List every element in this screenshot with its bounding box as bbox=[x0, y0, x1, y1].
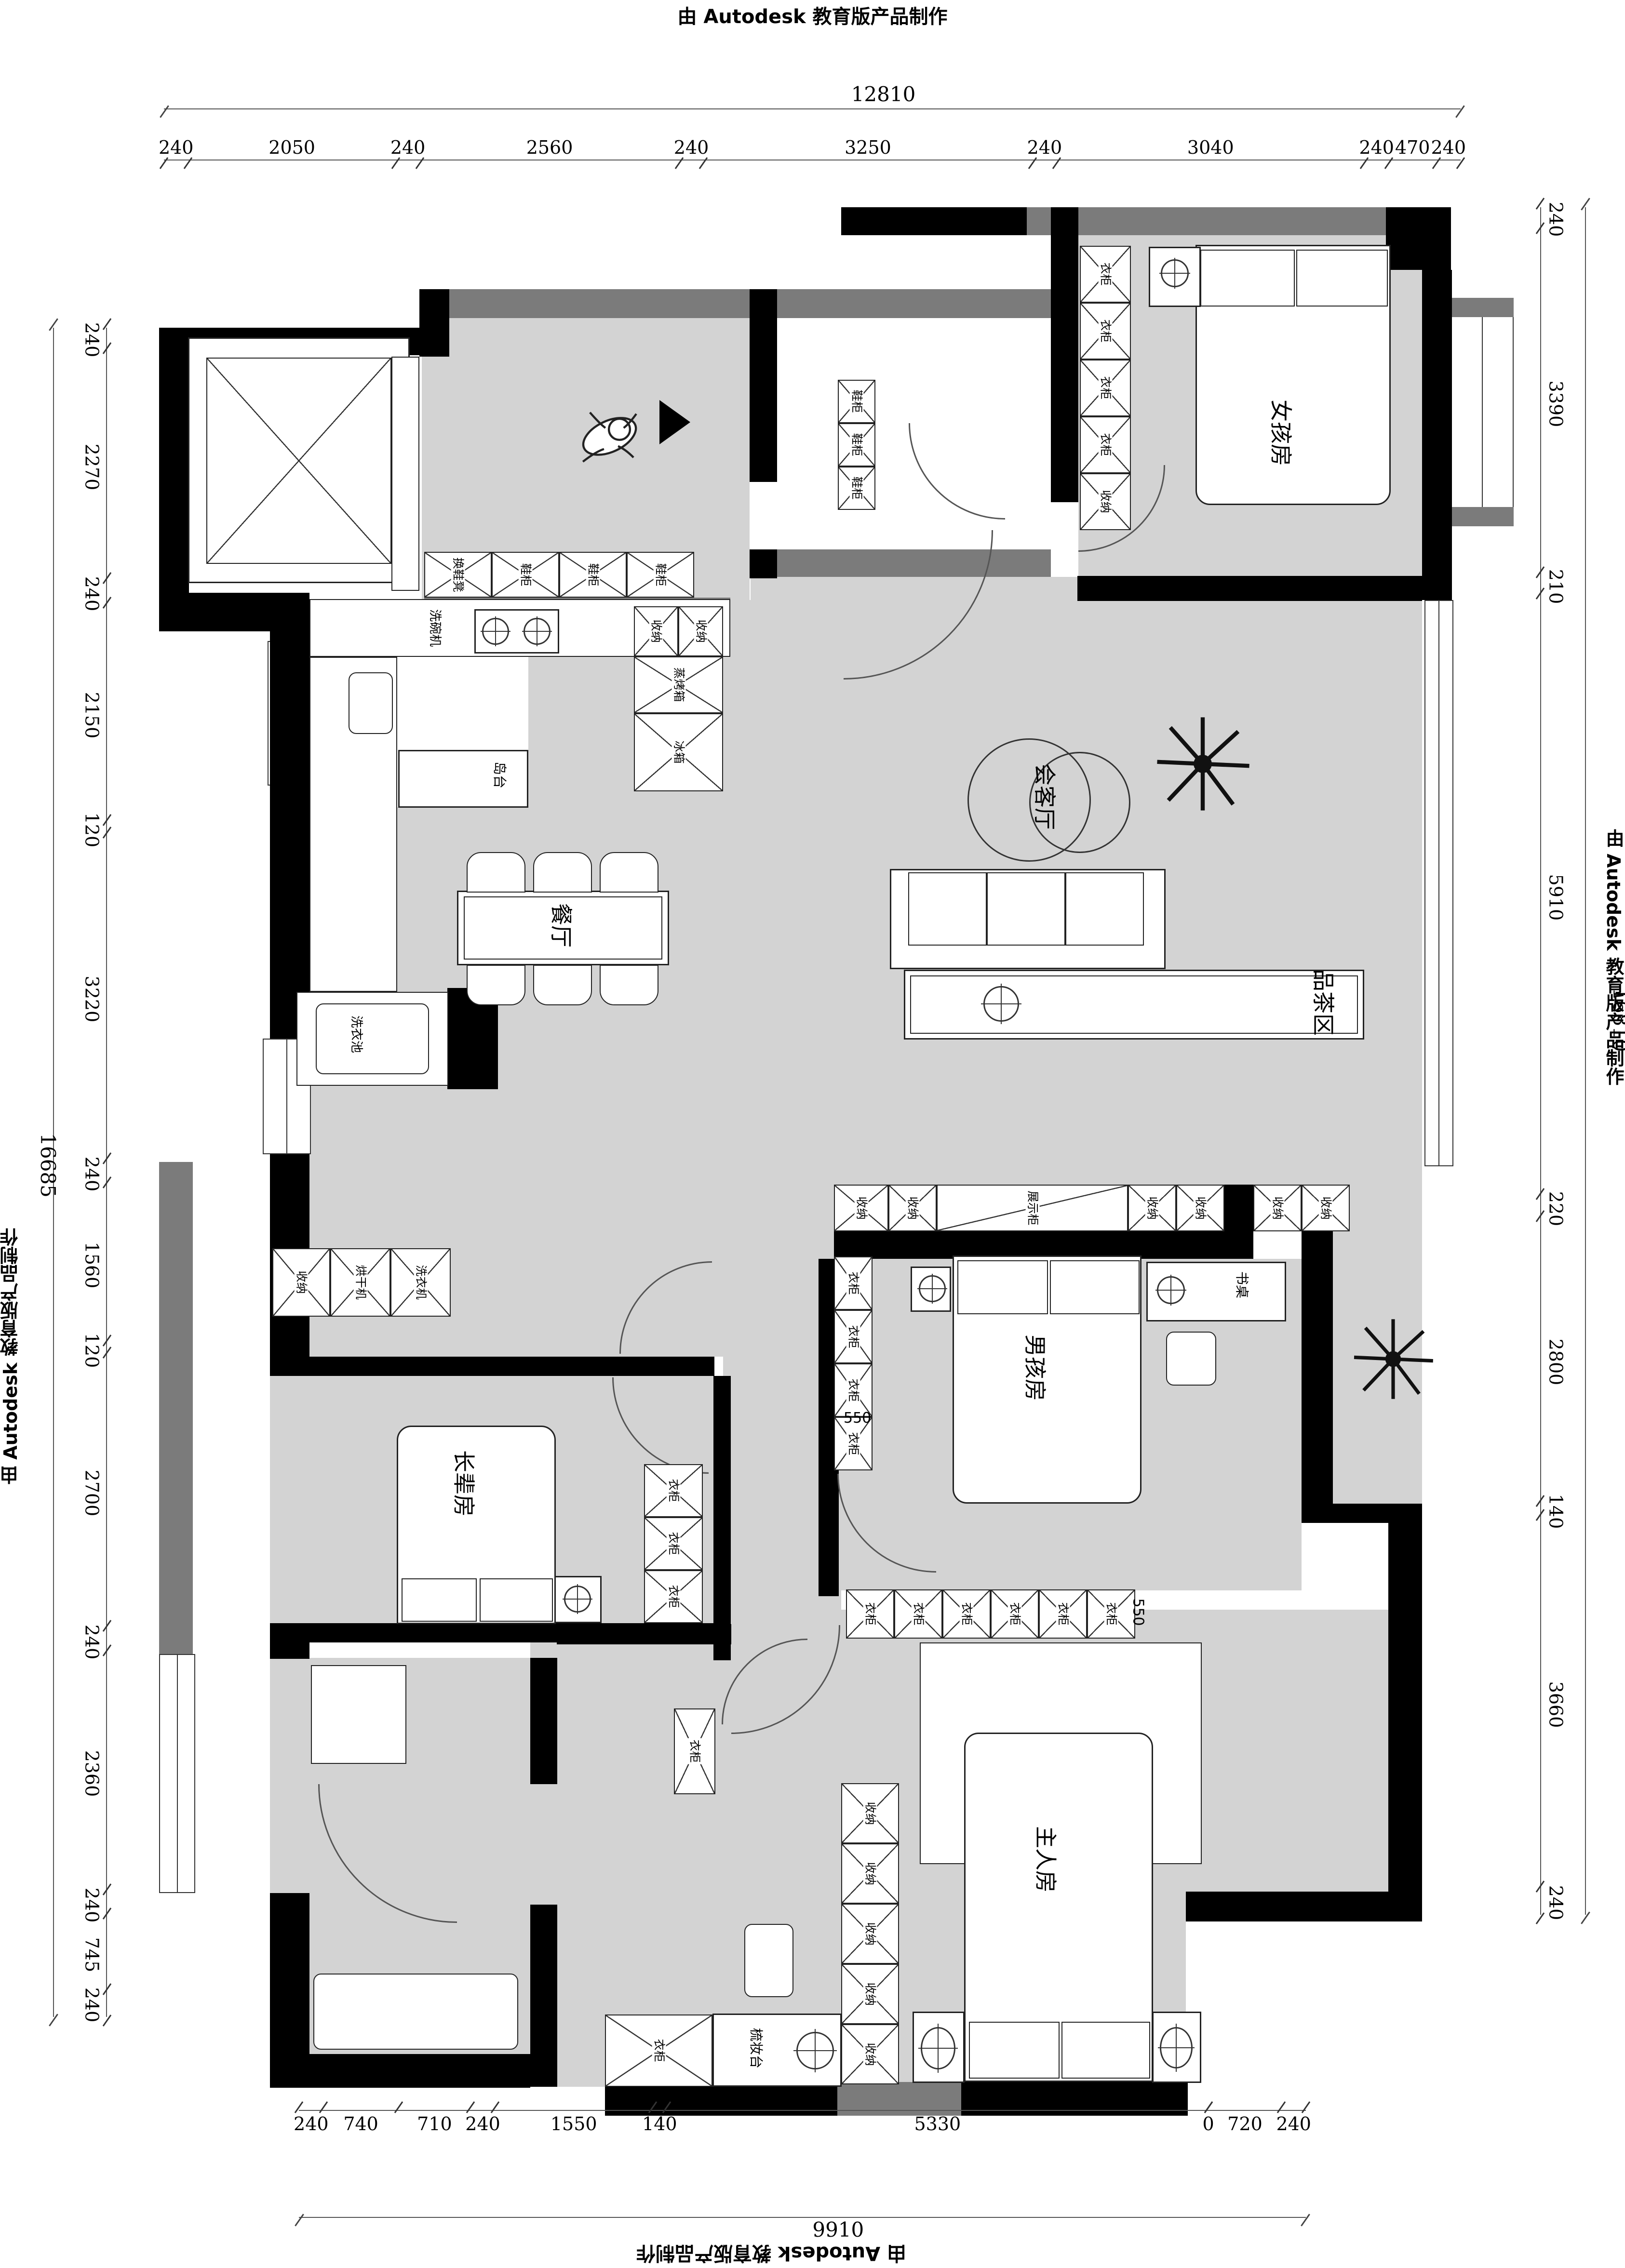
dim-segment: 240 bbox=[77, 1162, 106, 1186]
furniture-box bbox=[533, 965, 592, 1005]
text-label: 品茶区 bbox=[1312, 969, 1334, 1036]
wall bbox=[270, 1357, 714, 1376]
dim-chain-bottom: 240740710240155014053300720240 bbox=[299, 2110, 1306, 2139]
cabinet-cell: 收纳 bbox=[841, 1964, 899, 2024]
wall bbox=[1302, 1231, 1333, 1504]
cabinet-cell: 收纳 bbox=[1253, 1185, 1302, 1231]
dim-segment: 240 bbox=[1437, 133, 1461, 160]
autodesk-banner-bottom: 由 Autodesk 教育版产品制作 bbox=[492, 2241, 1051, 2268]
wall bbox=[1051, 207, 1078, 502]
text-label: 梳妆台 bbox=[749, 2028, 763, 2068]
dim-segment: 5330 bbox=[667, 2111, 1209, 2139]
dim-segment: 3390 bbox=[1541, 232, 1570, 576]
furniture-box bbox=[1200, 250, 1295, 307]
dim-segment: 1550 bbox=[495, 2111, 653, 2139]
cabinet-cell: 衣柜 bbox=[834, 1363, 873, 1417]
dim-segment: 120 bbox=[77, 1344, 106, 1356]
door-arc bbox=[731, 1625, 840, 1734]
dim-segment: 240 bbox=[77, 582, 106, 606]
fixture-circle bbox=[524, 618, 551, 645]
furniture-box bbox=[402, 1578, 477, 1622]
dim-segment: 120 bbox=[77, 824, 106, 836]
furniture-box bbox=[391, 357, 419, 591]
fixture-circle bbox=[983, 986, 1019, 1022]
dim-segment: 240 bbox=[1281, 2111, 1306, 2139]
dim-segment-value: 3660 bbox=[1546, 1681, 1565, 1728]
dim-segment: 240 bbox=[396, 133, 420, 160]
dim-segment: 5910 bbox=[1541, 597, 1570, 1198]
cabinet-cell: 衣柜 bbox=[644, 1570, 703, 1623]
furniture-box bbox=[480, 1578, 553, 1622]
dim-segment: 240 bbox=[1364, 133, 1388, 160]
furniture-box bbox=[467, 965, 525, 1005]
fixture-circle bbox=[1157, 1276, 1185, 1304]
dim-segment: 2050 bbox=[188, 133, 395, 160]
cabinet-cell: 衣柜 bbox=[1039, 1589, 1087, 1639]
cabinet-cell: 衣柜 bbox=[942, 1589, 991, 1639]
cabinet-cell: 收纳 bbox=[634, 606, 678, 656]
dim-total-top: 12810 bbox=[164, 88, 1461, 109]
cabinet-cell: 收纳 bbox=[888, 1185, 937, 1231]
dim-segment: 2360 bbox=[77, 1654, 106, 1893]
furniture-box bbox=[1061, 2022, 1150, 2079]
wall bbox=[419, 289, 449, 357]
dim-segment: 210 bbox=[1541, 576, 1570, 597]
wall bbox=[1386, 207, 1451, 270]
fixture-circle bbox=[1160, 2027, 1193, 2068]
text-label: 会客厅 bbox=[1034, 763, 1056, 830]
furniture-box bbox=[316, 1003, 429, 1074]
cabinet-cell: 收纳 bbox=[841, 1904, 899, 1964]
cabinet-cell: 展示柜 bbox=[937, 1185, 1128, 1231]
dim-segment-value: 2560 bbox=[526, 138, 573, 157]
dim-total-bottom: 9910 bbox=[299, 2196, 1306, 2218]
floor-plan-canvas: 衣柜衣柜衣柜衣柜收纳女孩房鞋柜鞋柜鞋柜换鞋凳鞋柜鞋柜鞋柜洗碗机岛台收纳收纳蒸烤箱… bbox=[0, 0, 1625, 2268]
fixture-circle bbox=[482, 618, 509, 645]
dim-segment-value: 2360 bbox=[82, 1750, 101, 1797]
dim-segment: 3660 bbox=[1541, 1519, 1570, 1890]
furniture-box bbox=[957, 1260, 1048, 1314]
cabinet-cell: 衣柜 bbox=[1087, 1589, 1135, 1639]
autodesk-banner-top: 由 Autodesk 教育版产品制作 bbox=[0, 1, 1625, 29]
dim-segment: 140 bbox=[1541, 1505, 1570, 1519]
wall bbox=[1224, 1185, 1253, 1231]
dim-segment-value: 2270 bbox=[82, 443, 101, 490]
dim-segment: 720 bbox=[1209, 2111, 1282, 2139]
dim-segment-value: 740 bbox=[343, 2115, 378, 2133]
entry-arrow-icon bbox=[659, 400, 690, 444]
door-arc bbox=[612, 1377, 709, 1474]
cabinet-cell: 收纳 bbox=[1176, 1185, 1224, 1231]
text-label: 洗碗机 bbox=[429, 609, 441, 647]
furniture-box bbox=[313, 1974, 518, 2050]
dim-segment-value: 3390 bbox=[1546, 380, 1565, 427]
fixture-circle bbox=[796, 2032, 834, 2069]
cabinet-cell: 鞋柜 bbox=[559, 552, 627, 598]
cabinet-cell: 收纳 bbox=[1128, 1185, 1176, 1231]
dim-segment: 240 bbox=[1033, 133, 1057, 160]
dim-segment: 710 bbox=[399, 2111, 471, 2139]
dim-segment: 240 bbox=[679, 133, 703, 160]
wall-secondary bbox=[777, 289, 1051, 318]
dim-segment: 3040 bbox=[1057, 133, 1364, 160]
fixture-circle bbox=[1161, 259, 1189, 287]
cabinet-cell: 换鞋凳 bbox=[424, 552, 492, 598]
fixture-circle bbox=[919, 1275, 946, 1302]
furniture-box bbox=[987, 872, 1065, 946]
wall bbox=[270, 1893, 309, 2088]
dim-segment: 740 bbox=[323, 2111, 399, 2139]
dim-segment-value: 240 bbox=[1431, 138, 1466, 157]
cabinet-cell: 鞋柜 bbox=[492, 552, 559, 598]
furniture-box bbox=[533, 852, 592, 893]
wall bbox=[270, 1624, 309, 1659]
dim-segment-value: 2800 bbox=[1546, 1339, 1565, 1386]
dim-segment: 240 bbox=[299, 2111, 323, 2139]
dim-total-left-value: 16685 bbox=[38, 1134, 58, 1198]
furniture-box bbox=[349, 672, 393, 734]
text-label: 主人房 bbox=[1034, 1826, 1057, 1893]
dim-segment: 2800 bbox=[1541, 1220, 1570, 1504]
dim-segment-value: 2050 bbox=[269, 138, 315, 157]
cabinet-cell: 衣柜 bbox=[834, 1256, 873, 1310]
dim-segment: 240 bbox=[164, 133, 188, 160]
text-label: 长辈房 bbox=[453, 1450, 475, 1517]
furniture-box bbox=[600, 965, 658, 1005]
cabinet-cell bbox=[206, 358, 391, 564]
door-arc bbox=[318, 1784, 457, 1923]
cabinet-cell: 冰箱 bbox=[634, 713, 723, 791]
wall-secondary bbox=[1451, 507, 1514, 526]
furniture-box bbox=[1166, 1332, 1216, 1386]
dim-segment-value: 470 bbox=[1395, 138, 1430, 157]
wall bbox=[1077, 576, 1422, 601]
plant-icon bbox=[1350, 1316, 1437, 1402]
dim-segment-value: 2700 bbox=[82, 1470, 101, 1517]
door-arc bbox=[844, 530, 993, 680]
wall bbox=[834, 1231, 1253, 1259]
dim-segment-value: 745 bbox=[82, 1937, 101, 1973]
dim-chain-left: 2402270240215012032202401560120270024023… bbox=[77, 328, 107, 2017]
wall bbox=[841, 207, 1027, 235]
wall bbox=[713, 1376, 731, 1660]
dim-segment: 240 bbox=[1541, 207, 1570, 232]
furniture-box bbox=[398, 750, 528, 808]
cabinet-cell: 鞋柜 bbox=[838, 423, 875, 467]
person-icon bbox=[569, 393, 653, 477]
window bbox=[1451, 313, 1514, 511]
dim-segment-value: 710 bbox=[417, 2115, 452, 2133]
cabinet-cell: 收纳 bbox=[841, 1783, 899, 1843]
wall-secondary bbox=[159, 1162, 193, 1654]
floor-plan-page: 由 Autodesk 教育版产品制作 由 Autodesk 教育版产品制作 由 … bbox=[0, 0, 1625, 2268]
furniture-box bbox=[311, 1665, 406, 1764]
dim-segment: 220 bbox=[1541, 1198, 1570, 1220]
text-label: 书桌 bbox=[1235, 1271, 1249, 1298]
cabinet-cell: 衣柜 bbox=[644, 1464, 703, 1517]
fixture-circle bbox=[564, 1586, 591, 1613]
wall-secondary bbox=[1451, 298, 1514, 317]
autodesk-banner-left: 由 Autodesk 教育版产品制作 bbox=[0, 858, 24, 1484]
cabinet-cell: 衣柜 bbox=[644, 1517, 703, 1570]
dim-segment-value: 2150 bbox=[82, 692, 101, 738]
cabinet-cell: 衣柜 bbox=[605, 2015, 712, 2087]
dim-total-bottom-value: 9910 bbox=[812, 2220, 864, 2240]
dim-segment-value: 5910 bbox=[1546, 874, 1565, 921]
dim-segment: 470 bbox=[1389, 133, 1437, 160]
wall bbox=[750, 289, 777, 482]
dim-segment: 240 bbox=[77, 328, 106, 352]
floor-area bbox=[1186, 1610, 1388, 1892]
dim-segment-value: 240 bbox=[1546, 1885, 1565, 1920]
dim-segment: 745 bbox=[77, 1917, 106, 1993]
window bbox=[1424, 600, 1453, 1166]
dim-chain-right: 2403390210591022028001403660240 bbox=[1540, 207, 1570, 1915]
cabinet-cell: 收纳 bbox=[841, 1843, 899, 1904]
wall bbox=[557, 1624, 731, 1644]
cabinet-cell: 烘干机 bbox=[330, 1248, 390, 1317]
cabinet-cell: 收纳 bbox=[1080, 473, 1131, 530]
cabinet-cell: 收纳 bbox=[834, 1185, 888, 1231]
cabinet-cell: 衣柜 bbox=[846, 1589, 894, 1639]
cabinet-cell: 衣柜 bbox=[834, 1310, 873, 1363]
dim-segment-value: 3250 bbox=[845, 138, 891, 157]
dim-segment: 240 bbox=[77, 1893, 106, 1917]
dim-segment-value: 1550 bbox=[551, 2115, 597, 2133]
cabinet-cell: 衣柜 bbox=[674, 1708, 715, 1794]
cabinet-cell: 收纳 bbox=[272, 1248, 330, 1317]
cabinet-cell: 鞋柜 bbox=[838, 467, 875, 510]
dim-segment: 240 bbox=[77, 1993, 106, 2017]
text-label: 550 bbox=[1131, 1598, 1145, 1626]
dim-segment-value: 1560 bbox=[82, 1242, 101, 1289]
cabinet-cell: 衣柜 bbox=[894, 1589, 942, 1639]
cabinet-cell: 衣柜 bbox=[1080, 246, 1131, 303]
text-label: 岛台 bbox=[493, 761, 506, 788]
dim-segment: 3220 bbox=[77, 836, 106, 1162]
dim-segment: 1560 bbox=[77, 1186, 106, 1344]
plant-icon bbox=[1152, 713, 1253, 814]
furniture-box bbox=[1065, 872, 1144, 946]
dim-total-left: 16685 bbox=[33, 328, 54, 2017]
text-label: 女孩房 bbox=[1270, 400, 1292, 466]
wall bbox=[309, 2054, 530, 2088]
wall bbox=[270, 631, 309, 1012]
furniture-box bbox=[908, 872, 987, 946]
cabinet-cell: 衣柜 bbox=[1080, 416, 1131, 473]
wall bbox=[1302, 1504, 1388, 1523]
cabinet-cell: 衣柜 bbox=[1080, 303, 1131, 360]
door-arc bbox=[909, 423, 1005, 520]
dim-segment: 2560 bbox=[420, 133, 679, 160]
furniture-box bbox=[467, 852, 525, 893]
cabinet-cell: 洗衣机 bbox=[390, 1248, 451, 1317]
cabinet-cell: 鞋柜 bbox=[627, 552, 694, 598]
wall-secondary bbox=[1027, 207, 1386, 235]
text-label: 男孩房 bbox=[1024, 1334, 1046, 1401]
dim-segment: 2150 bbox=[77, 606, 106, 824]
window bbox=[159, 1654, 195, 1893]
furniture-box bbox=[744, 1924, 793, 1997]
dim-segment-value: 240 bbox=[1276, 2115, 1311, 2133]
cabinet-cell: 蒸烤箱 bbox=[634, 656, 723, 713]
door-arc bbox=[619, 1261, 712, 1354]
furniture-box bbox=[969, 2022, 1060, 2079]
dim-segment: 140 bbox=[653, 2111, 667, 2139]
wall bbox=[1186, 1892, 1422, 1921]
furniture-box bbox=[1050, 1260, 1140, 1314]
dim-segment: 240 bbox=[470, 2111, 495, 2139]
dim-segment: 240 bbox=[77, 1629, 106, 1654]
dim-chain-top: 2402050240256024032502403040240470240 bbox=[164, 133, 1461, 160]
furniture-box bbox=[600, 852, 658, 893]
door-arc bbox=[837, 1474, 936, 1573]
cabinet-cell: 收纳 bbox=[678, 606, 723, 656]
cabinet-cell: 衣柜 bbox=[991, 1589, 1039, 1639]
wall bbox=[159, 328, 189, 594]
dim-segment: 2700 bbox=[77, 1356, 106, 1629]
dim-total-top-value: 12810 bbox=[851, 84, 916, 105]
dim-segment-value: 240 bbox=[82, 1988, 101, 2023]
dim-segment: 2270 bbox=[77, 352, 106, 582]
text-label: 餐厅 bbox=[550, 903, 572, 947]
autodesk-banner-right: 由 Autodesk 教育版产品制作 bbox=[1600, 829, 1625, 1455]
dim-segment-value: 720 bbox=[1227, 2115, 1262, 2133]
furniture-box bbox=[910, 975, 1358, 1034]
cabinet-cell: 衣柜 bbox=[1080, 360, 1131, 416]
cabinet-cell: 鞋柜 bbox=[838, 380, 875, 423]
cabinet-cell: 收纳 bbox=[841, 2024, 899, 2084]
furniture-box bbox=[1296, 250, 1388, 307]
text-label: 洗衣池 bbox=[350, 1015, 363, 1053]
text-label: 550 bbox=[844, 1411, 871, 1426]
dim-segment-value: 3040 bbox=[1187, 138, 1234, 157]
dim-segment-value: 5330 bbox=[914, 2115, 961, 2133]
fixture-circle bbox=[921, 2027, 955, 2069]
wall-secondary bbox=[448, 289, 750, 318]
wall bbox=[159, 593, 309, 631]
wall bbox=[750, 549, 777, 578]
dim-segment: 3250 bbox=[703, 133, 1032, 160]
cabinet-cell: 收纳 bbox=[1302, 1185, 1350, 1231]
dim-segment-value: 3220 bbox=[82, 975, 101, 1022]
wall bbox=[530, 1658, 557, 1784]
dim-segment: 240 bbox=[1541, 1890, 1570, 1915]
wall bbox=[530, 1905, 557, 2087]
wall bbox=[1388, 1504, 1422, 1893]
wall bbox=[1422, 270, 1452, 600]
